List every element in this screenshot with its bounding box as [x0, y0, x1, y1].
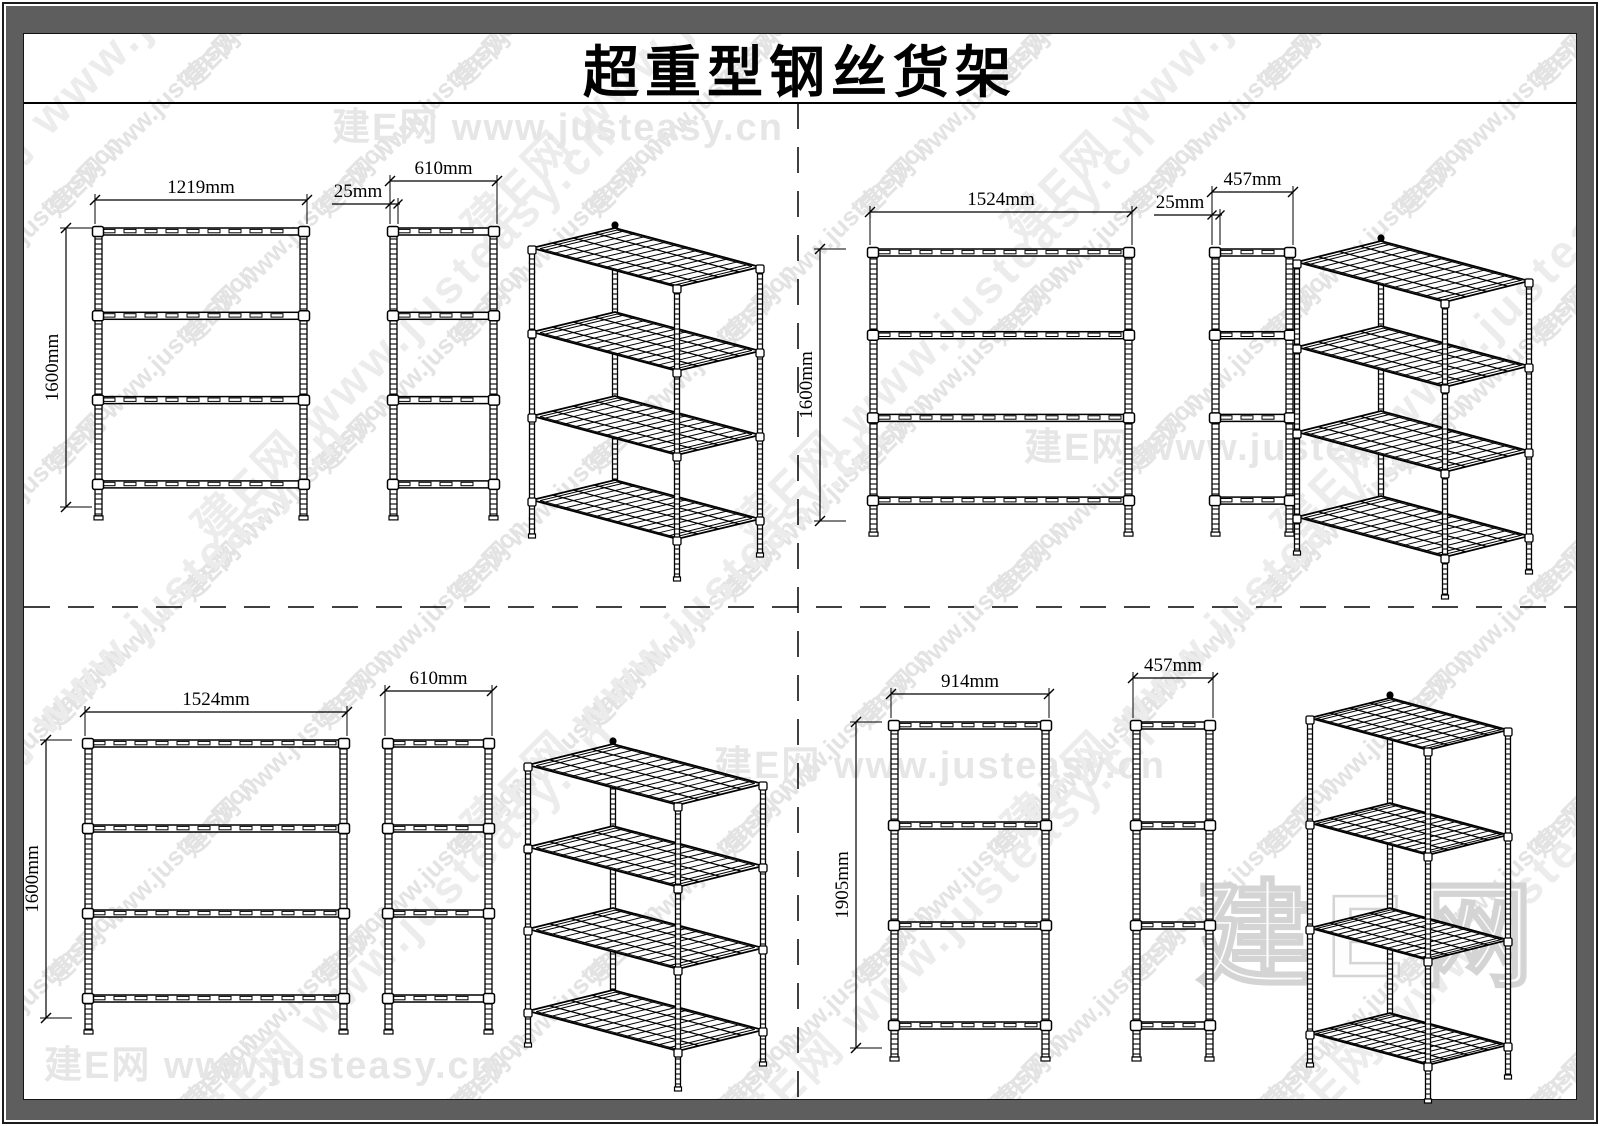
dimension-label: 1600mm [42, 334, 63, 402]
dimension-label: 1600mm [22, 845, 43, 913]
quadrant-bottom-right: 914mm457mm1905mm [832, 655, 1512, 1103]
dimension-label: 25mm [1156, 192, 1205, 213]
dimension-label: 1600mm [796, 351, 817, 419]
dimension-label: 914mm [941, 671, 999, 692]
dimension-label: 610mm [414, 158, 472, 179]
dimension-label: 610mm [409, 668, 467, 689]
dimension-label: 25mm [334, 181, 383, 202]
dimension-label: 1905mm [832, 851, 853, 919]
dimension-label: 457mm [1223, 169, 1281, 190]
dimension-label: 1524mm [182, 689, 250, 710]
title-bar: 超重型钢丝货架 [23, 33, 1577, 103]
dimension-label: 1524mm [967, 189, 1035, 210]
dimension-label: 1219mm [167, 177, 235, 198]
quadrant-top-left: 1219mm610mm25mm1600mm [42, 158, 764, 581]
shelving-drawings: 1219mm610mm25mm1600mm1524mm457mm25mm1600… [0, 0, 1600, 1126]
drawing-title: 超重型钢丝货架 [583, 28, 1017, 109]
dimension-label: 457mm [1144, 655, 1202, 676]
quadrant-bottom-left: 1524mm610mm1600mm [22, 668, 767, 1091]
drawing-canvas: 建E网 www.justeasy.cn建E网 www.justeasy.cn建E… [0, 0, 1600, 1126]
quadrant-top-right: 1524mm457mm25mm1600mm [796, 169, 1533, 599]
